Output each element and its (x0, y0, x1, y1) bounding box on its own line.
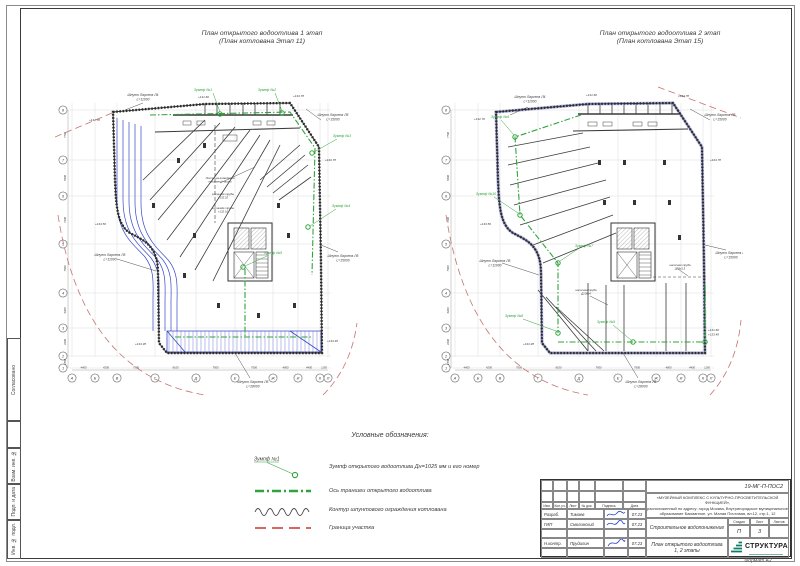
svg-text:+133.78: +133.78 (293, 94, 304, 98)
svg-text:Д89х3,5: Д89х3,5 (674, 267, 686, 271)
svg-text:+133.38: +133.38 (135, 342, 146, 346)
svg-text:+133.48: +133.48 (327, 339, 338, 343)
col-date: Дата (623, 502, 646, 509)
svg-text:1150: 1150 (321, 365, 327, 369)
title-block: Изм. Кол.уч. Лист № док. Подпись Дата Ра… (540, 479, 791, 557)
structura-logo-icon (729, 541, 743, 553)
row-razrab-name: Тимаев (567, 509, 604, 519)
row-gip-date: 07.23 (628, 519, 646, 529)
svg-text:L=15000: L=15000 (326, 118, 339, 122)
margin-cell-inv: Инв. № подл. (7, 519, 21, 559)
svg-text:+133.78: +133.78 (678, 94, 689, 98)
svg-text:+133.38: +133.38 (523, 342, 534, 346)
svg-text:L=28000: L=28000 (246, 385, 259, 389)
svg-text:7500: 7500 (634, 365, 640, 369)
svg-text:Шпунт Ларсена Л5: Шпунт Ларсена Л5 (318, 113, 349, 117)
svg-text:И: И (680, 377, 683, 381)
svg-text:Ж: Ж (270, 377, 275, 381)
svg-text:+131.60: +131.60 (198, 95, 209, 99)
svg-text:Зумпф №2: Зумпф №2 (258, 88, 276, 92)
svg-text:7500: 7500 (596, 365, 602, 369)
svg-text:4: 4 (445, 291, 447, 295)
blue-bottom-band (167, 331, 321, 352)
svg-text:Зумпф №1: Зумпф №1 (194, 88, 212, 92)
svg-text:L=15000: L=15000 (713, 118, 726, 122)
svg-text:Шпунт Ларсена Л5: Шпунт Ларсена Л5 (705, 113, 736, 117)
row-razrab-role: Разраб. (541, 509, 567, 519)
svg-text:Зумпф №8: Зумпф №8 (505, 314, 523, 318)
col-koluch: Кол.уч. (553, 502, 567, 509)
plan2-drawing: АБВГДЕЖИКЛ876543214400420075008100750075… (438, 85, 743, 400)
svg-text:7400: 7400 (63, 217, 67, 223)
company-name: СТРУКТУРА (745, 543, 788, 550)
row-ncontr-role: Н.контр. (541, 538, 567, 548)
svg-text:Шпунт Ларсена Л5: Шпунт Ларсена Л5 (716, 251, 743, 255)
svg-text:7700: 7700 (446, 132, 450, 138)
svg-text:4200: 4200 (103, 365, 109, 369)
svg-text:7500: 7500 (516, 365, 522, 369)
row-gip-signature (604, 519, 628, 529)
svg-text:В: В (116, 377, 119, 381)
svg-text:Зумпф №3: Зумпф №3 (333, 134, 351, 138)
row-razrab-signature (604, 509, 628, 519)
row-ncontr-name: Прудилин (567, 538, 604, 548)
svg-text:+133.48: +133.48 (708, 333, 719, 337)
svg-text:подземной части: подземной части (208, 180, 232, 184)
row-gip-name: Смолинский (567, 519, 604, 529)
format-label: Формат А2 (725, 558, 791, 564)
legend-item-sheet-pile: Контур шпунтового ограждения котлована (253, 504, 447, 516)
svg-text:4800: 4800 (666, 365, 672, 369)
legend-item-trench-axis: Ось траншеи открытого водоотлива (253, 486, 432, 496)
row-ncontr-date: 07.23 (628, 538, 646, 548)
trench-axis-symbol (253, 486, 315, 496)
sheet-pile-symbol (253, 504, 315, 516)
svg-text:А: А (70, 377, 74, 381)
svg-text:Зумпф №6: Зумпф №6 (491, 115, 509, 119)
svg-text:1: 1 (445, 366, 447, 370)
svg-text:4400: 4400 (689, 365, 695, 369)
drawing-sheet: Согласовано Взам. инв. № Подп. и дата Ин… (0, 0, 800, 566)
svg-text:Зумпф №9: Зумпф №9 (597, 320, 615, 324)
svg-text:4400: 4400 (81, 365, 87, 369)
svg-text:Л: Л (709, 377, 713, 381)
svg-text:L=15000: L=15000 (724, 256, 737, 260)
svg-text:8100: 8100 (173, 365, 179, 369)
svg-text:+132.10: +132.10 (218, 196, 229, 200)
label-leaders (502, 107, 726, 378)
stage-value: П (728, 525, 750, 538)
margin-cell-empty (7, 420, 21, 449)
svg-text:+133.78: +133.78 (325, 158, 336, 162)
svg-text:+131.60: +131.60 (708, 328, 719, 332)
project-name: «МУЗЕЙНЫЙ КОМПЛЕКС С КУЛЬТУРНО-ПРОСВЕТИТ… (646, 493, 789, 518)
svg-text:Л: Л (326, 377, 330, 381)
svg-text:L=15000: L=15000 (336, 259, 349, 263)
svg-text:Зумпф №4: Зумпф №4 (332, 204, 350, 208)
slope-contours (117, 118, 177, 331)
sheet-pile-outline (496, 103, 705, 353)
svg-text:Д108х4: Д108х4 (580, 292, 591, 296)
svg-text:Д: Д (194, 377, 198, 381)
svg-text:+133.78: +133.78 (710, 158, 721, 162)
company-tagline-line (749, 554, 783, 556)
sheet-header: Лист (750, 518, 769, 525)
svg-text:Шпунт Ларсена Л5: Шпунт Ларсена Л5 (626, 380, 657, 384)
svg-text:7500: 7500 (213, 365, 219, 369)
svg-text:4400: 4400 (63, 339, 67, 345)
svg-text:5400: 5400 (446, 307, 450, 313)
svg-text:L=11000: L=11000 (488, 264, 501, 268)
sheet-pile-outline (113, 103, 322, 353)
sheets-header: Листов (769, 518, 789, 525)
stage-header: Стадия (728, 518, 750, 525)
svg-text:Зумпф №10: Зумпф №10 (476, 192, 496, 196)
svg-text:7500: 7500 (63, 265, 67, 271)
doc-code: 19-МГ-П-ПОС2 (646, 480, 789, 493)
svg-text:4400: 4400 (464, 365, 470, 369)
svg-text:4800: 4800 (283, 365, 289, 369)
svg-text:Зумпф №1: Зумпф №1 (254, 457, 280, 463)
doc-title: Строительное водопонижение (646, 518, 728, 538)
svg-text:L=11000: L=11000 (103, 258, 116, 262)
svg-text:7500: 7500 (446, 265, 450, 271)
trench-axis-lines (494, 115, 707, 344)
margin-cell-approved: Согласовано (7, 338, 21, 422)
legend-item-boundary: Граница участка (253, 523, 374, 533)
svg-text:В: В (499, 377, 502, 381)
svg-text:5500: 5500 (63, 175, 67, 181)
svg-text:+132.70: +132.70 (89, 118, 100, 122)
col-ndoc: № док. (579, 502, 595, 509)
svg-text:L=11000: L=11000 (136, 98, 149, 102)
svg-text:+133.50: +133.50 (95, 222, 106, 226)
svg-text:L=11000: L=11000 (523, 100, 536, 104)
svg-text:+131.60: +131.60 (586, 93, 597, 97)
svg-text:7500: 7500 (251, 365, 257, 369)
svg-text:4200: 4200 (486, 365, 492, 369)
svg-text:1: 1 (62, 366, 64, 370)
svg-text:5400: 5400 (63, 307, 67, 313)
svg-text:4400: 4400 (306, 365, 312, 369)
sheets-value (769, 525, 789, 538)
col-izm: Изм. (541, 502, 553, 509)
svg-text:А: А (453, 377, 457, 381)
margin-cell-vzam: Взам. инв. № (7, 447, 21, 485)
svg-text:Шпунт Ларсена Л5: Шпунт Ларсена Л5 (328, 254, 359, 258)
row-gip-role: ГИП (541, 519, 567, 529)
plan1-title: План открытого водоотлива 1 этап(План ко… (112, 30, 412, 47)
legend: Условные обозначения: Зумпф №1 Зумпф отк… (235, 430, 545, 552)
svg-text:Шпунт Ларсена Л5: Шпунт Ларсена Л5 (480, 259, 511, 263)
boundary-symbol (253, 523, 315, 533)
sheet-title: План открытого водоотлива 1, 2 этапы (646, 538, 728, 558)
svg-text:+133.50: +133.50 (480, 222, 491, 226)
svg-text:1150: 1150 (704, 365, 710, 369)
core (611, 223, 655, 281)
struts (508, 103, 706, 351)
svg-text:4400: 4400 (446, 339, 450, 345)
svg-text:Д: Д (577, 377, 581, 381)
axes-layer: АБВГДЕЖИКЛ876543214400420075008100750075… (442, 103, 715, 382)
col-list: Лист (567, 502, 579, 509)
svg-text:И: И (297, 377, 300, 381)
svg-text:Зумпф №7: Зумпф №7 (575, 244, 594, 248)
sump-symbol: Зумпф №1 (253, 454, 315, 480)
svg-text:8100: 8100 (556, 365, 562, 369)
svg-text:+132.10: +132.10 (218, 210, 229, 214)
svg-text:Зумпф №5: Зумпф №5 (264, 251, 282, 255)
margin-cell-podp: Подп. и дата (7, 483, 21, 521)
svg-text:Шпунт Ларсена Л5: Шпунт Ларсена Л5 (95, 253, 126, 257)
legend-item-sump: Зумпф №1 Зумпф открытого водоотлива Дн=1… (253, 454, 479, 480)
col-sign: Подпись (595, 502, 623, 509)
row-ncontr-signature (604, 538, 628, 548)
company-logo: СТРУКТУРА (728, 538, 789, 558)
legend-title: Условные обозначения: (235, 432, 545, 439)
svg-text:Е: Е (234, 377, 237, 381)
svg-text:L=28000: L=28000 (634, 385, 647, 389)
plan1-drawing: АБВГДЕЖИКЛ876543214400420075008100750075… (55, 85, 360, 400)
svg-text:Шпунт Ларсена Л5: Шпунт Ларсена Л5 (238, 380, 269, 384)
svg-text:1850: 1850 (63, 359, 67, 365)
svg-text:Шпунт Ларсена Л4: Шпунт Ларсена Л4 (515, 95, 546, 99)
row-razrab-date: 07.23 (628, 509, 646, 519)
svg-text:Шпунт Ларсена Л4: Шпунт Ларсена Л4 (128, 93, 159, 97)
plan2-title: План открытого водоотлива 2 этап(План ко… (510, 30, 800, 47)
svg-text:4: 4 (62, 291, 64, 295)
svg-text:5500: 5500 (446, 175, 450, 181)
sheet-value: 3 (750, 525, 769, 538)
svg-text:Е: Е (617, 377, 620, 381)
svg-text:+132.70: +132.70 (474, 117, 485, 121)
svg-text:1850: 1850 (446, 359, 450, 365)
